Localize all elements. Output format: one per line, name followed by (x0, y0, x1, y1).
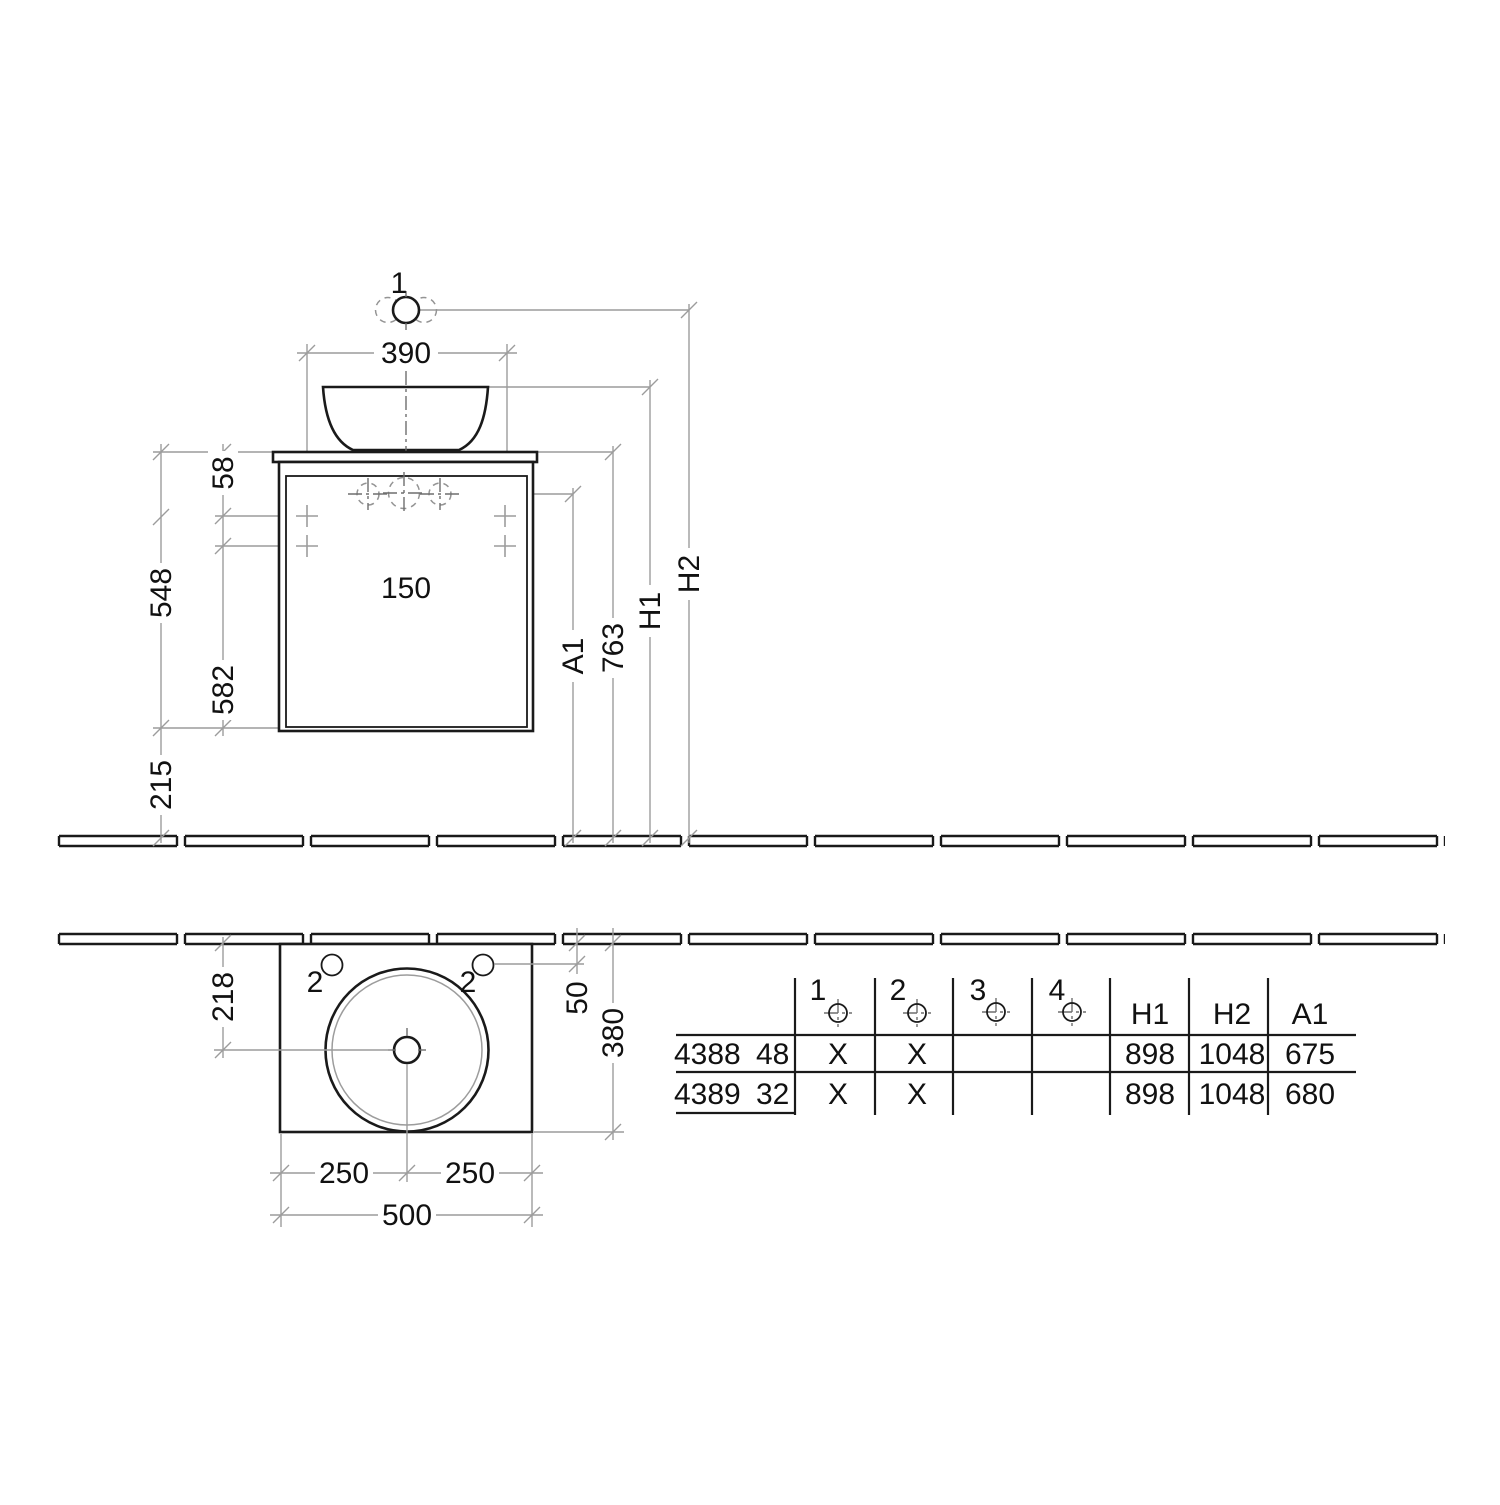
page-background (0, 0, 1500, 1500)
h2-value: 1048 (1199, 1078, 1266, 1111)
plan-hole-right-number: 2 (460, 966, 477, 999)
hole1-mark: X (828, 1078, 848, 1111)
dim-582: 582 (207, 665, 240, 715)
h1-value: 898 (1125, 1038, 1175, 1071)
col-header-2: 2 (890, 974, 907, 1007)
hole1-mark: X (828, 1038, 848, 1071)
dim-basin-width: 390 (381, 337, 431, 370)
col-header-a1: A1 (1292, 998, 1329, 1031)
vanity-technical-drawing: 1 390 150 (0, 0, 1500, 1500)
dim-58: 58 (207, 456, 240, 489)
dim-763: 763 (597, 623, 630, 673)
technical-drawing-page: 1 390 150 (0, 0, 1500, 1500)
model-number: 4388 (674, 1038, 741, 1071)
wall-break-line-upper (55, 834, 1445, 848)
dim-548: 548 (145, 568, 178, 618)
col-header-1: 1 (810, 974, 827, 1007)
tap-hole-icon (393, 297, 419, 323)
plan-hole-left-number: 2 (307, 966, 324, 999)
dim-tap-spacing: 150 (381, 572, 431, 605)
model-variant: 32 (756, 1078, 789, 1111)
dim-a1-label: A1 (557, 638, 590, 675)
hole2-mark: X (907, 1038, 927, 1071)
dim-500: 500 (382, 1199, 432, 1232)
dim-218: 218 (207, 972, 240, 1022)
dim-h2-label: H2 (673, 555, 706, 593)
model-number: 4389 (674, 1078, 741, 1111)
col-header-4: 4 (1049, 974, 1066, 1007)
dim-50: 50 (561, 981, 594, 1014)
a1-value: 680 (1285, 1078, 1335, 1111)
a1-value: 675 (1285, 1038, 1335, 1071)
countertop (273, 452, 537, 462)
model-variant: 48 (756, 1038, 789, 1071)
dim-250-left: 250 (319, 1157, 369, 1190)
dim-250-right: 250 (445, 1157, 495, 1190)
tap-position-number: 1 (391, 267, 408, 300)
col-header-h1: H1 (1131, 998, 1169, 1031)
hole2-mark: X (907, 1078, 927, 1111)
col-header-h2: H2 (1213, 998, 1251, 1031)
dim-h1-label: H1 (634, 592, 667, 630)
dim-215: 215 (145, 760, 178, 810)
wall-break-line-lower (55, 932, 1445, 946)
dim-380: 380 (597, 1008, 630, 1058)
drain-hole (394, 1037, 420, 1063)
h1-value: 898 (1125, 1078, 1175, 1111)
h2-value: 1048 (1199, 1038, 1266, 1071)
col-header-3: 3 (970, 974, 987, 1007)
